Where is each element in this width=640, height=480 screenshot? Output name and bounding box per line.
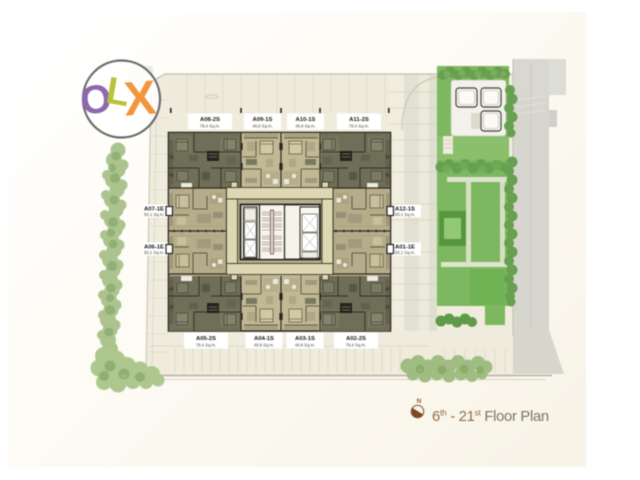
svg-text:X: X bbox=[122, 71, 158, 126]
svg-text:46.8 Sq.m.: 46.8 Sq.m. bbox=[295, 124, 315, 129]
svg-text:A03-1S: A03-1S bbox=[295, 336, 315, 342]
svg-text:78.4 Sq.m.: 78.4 Sq.m. bbox=[346, 343, 366, 348]
svg-text:50.1 Sq.m.: 50.1 Sq.m. bbox=[395, 250, 415, 255]
svg-text:78.4 Sq.m.: 78.4 Sq.m. bbox=[196, 343, 216, 348]
svg-text:50.1 Sq.m.: 50.1 Sq.m. bbox=[395, 212, 415, 217]
svg-text:46.8 Sq.m.: 46.8 Sq.m. bbox=[295, 343, 315, 348]
svg-text:A09-1S: A09-1S bbox=[253, 117, 273, 123]
svg-text:A11-2S: A11-2S bbox=[349, 117, 369, 123]
svg-text:N: N bbox=[417, 398, 422, 405]
svg-text:A08-2S: A08-2S bbox=[200, 117, 220, 123]
svg-text:A10-1S: A10-1S bbox=[296, 117, 316, 123]
svg-text:A04-1S: A04-1S bbox=[254, 336, 274, 342]
svg-text:A02-2S: A02-2S bbox=[346, 336, 366, 342]
svg-text:A05-2S: A05-2S bbox=[196, 336, 216, 342]
svg-text:46.8 Sq.m.: 46.8 Sq.m. bbox=[254, 343, 274, 348]
svg-text:46.8 Sq.m.: 46.8 Sq.m. bbox=[252, 124, 272, 129]
svg-text:50.1 Sq.m.: 50.1 Sq.m. bbox=[144, 212, 164, 217]
svg-text:50.1 Sq.m.: 50.1 Sq.m. bbox=[144, 250, 164, 255]
svg-text:78.4 Sq.m.: 78.4 Sq.m. bbox=[349, 124, 369, 129]
svg-text:6th - 21st Floor Plan: 6th - 21st Floor Plan bbox=[432, 407, 549, 425]
svg-text:78.4 Sq.m.: 78.4 Sq.m. bbox=[200, 124, 220, 129]
